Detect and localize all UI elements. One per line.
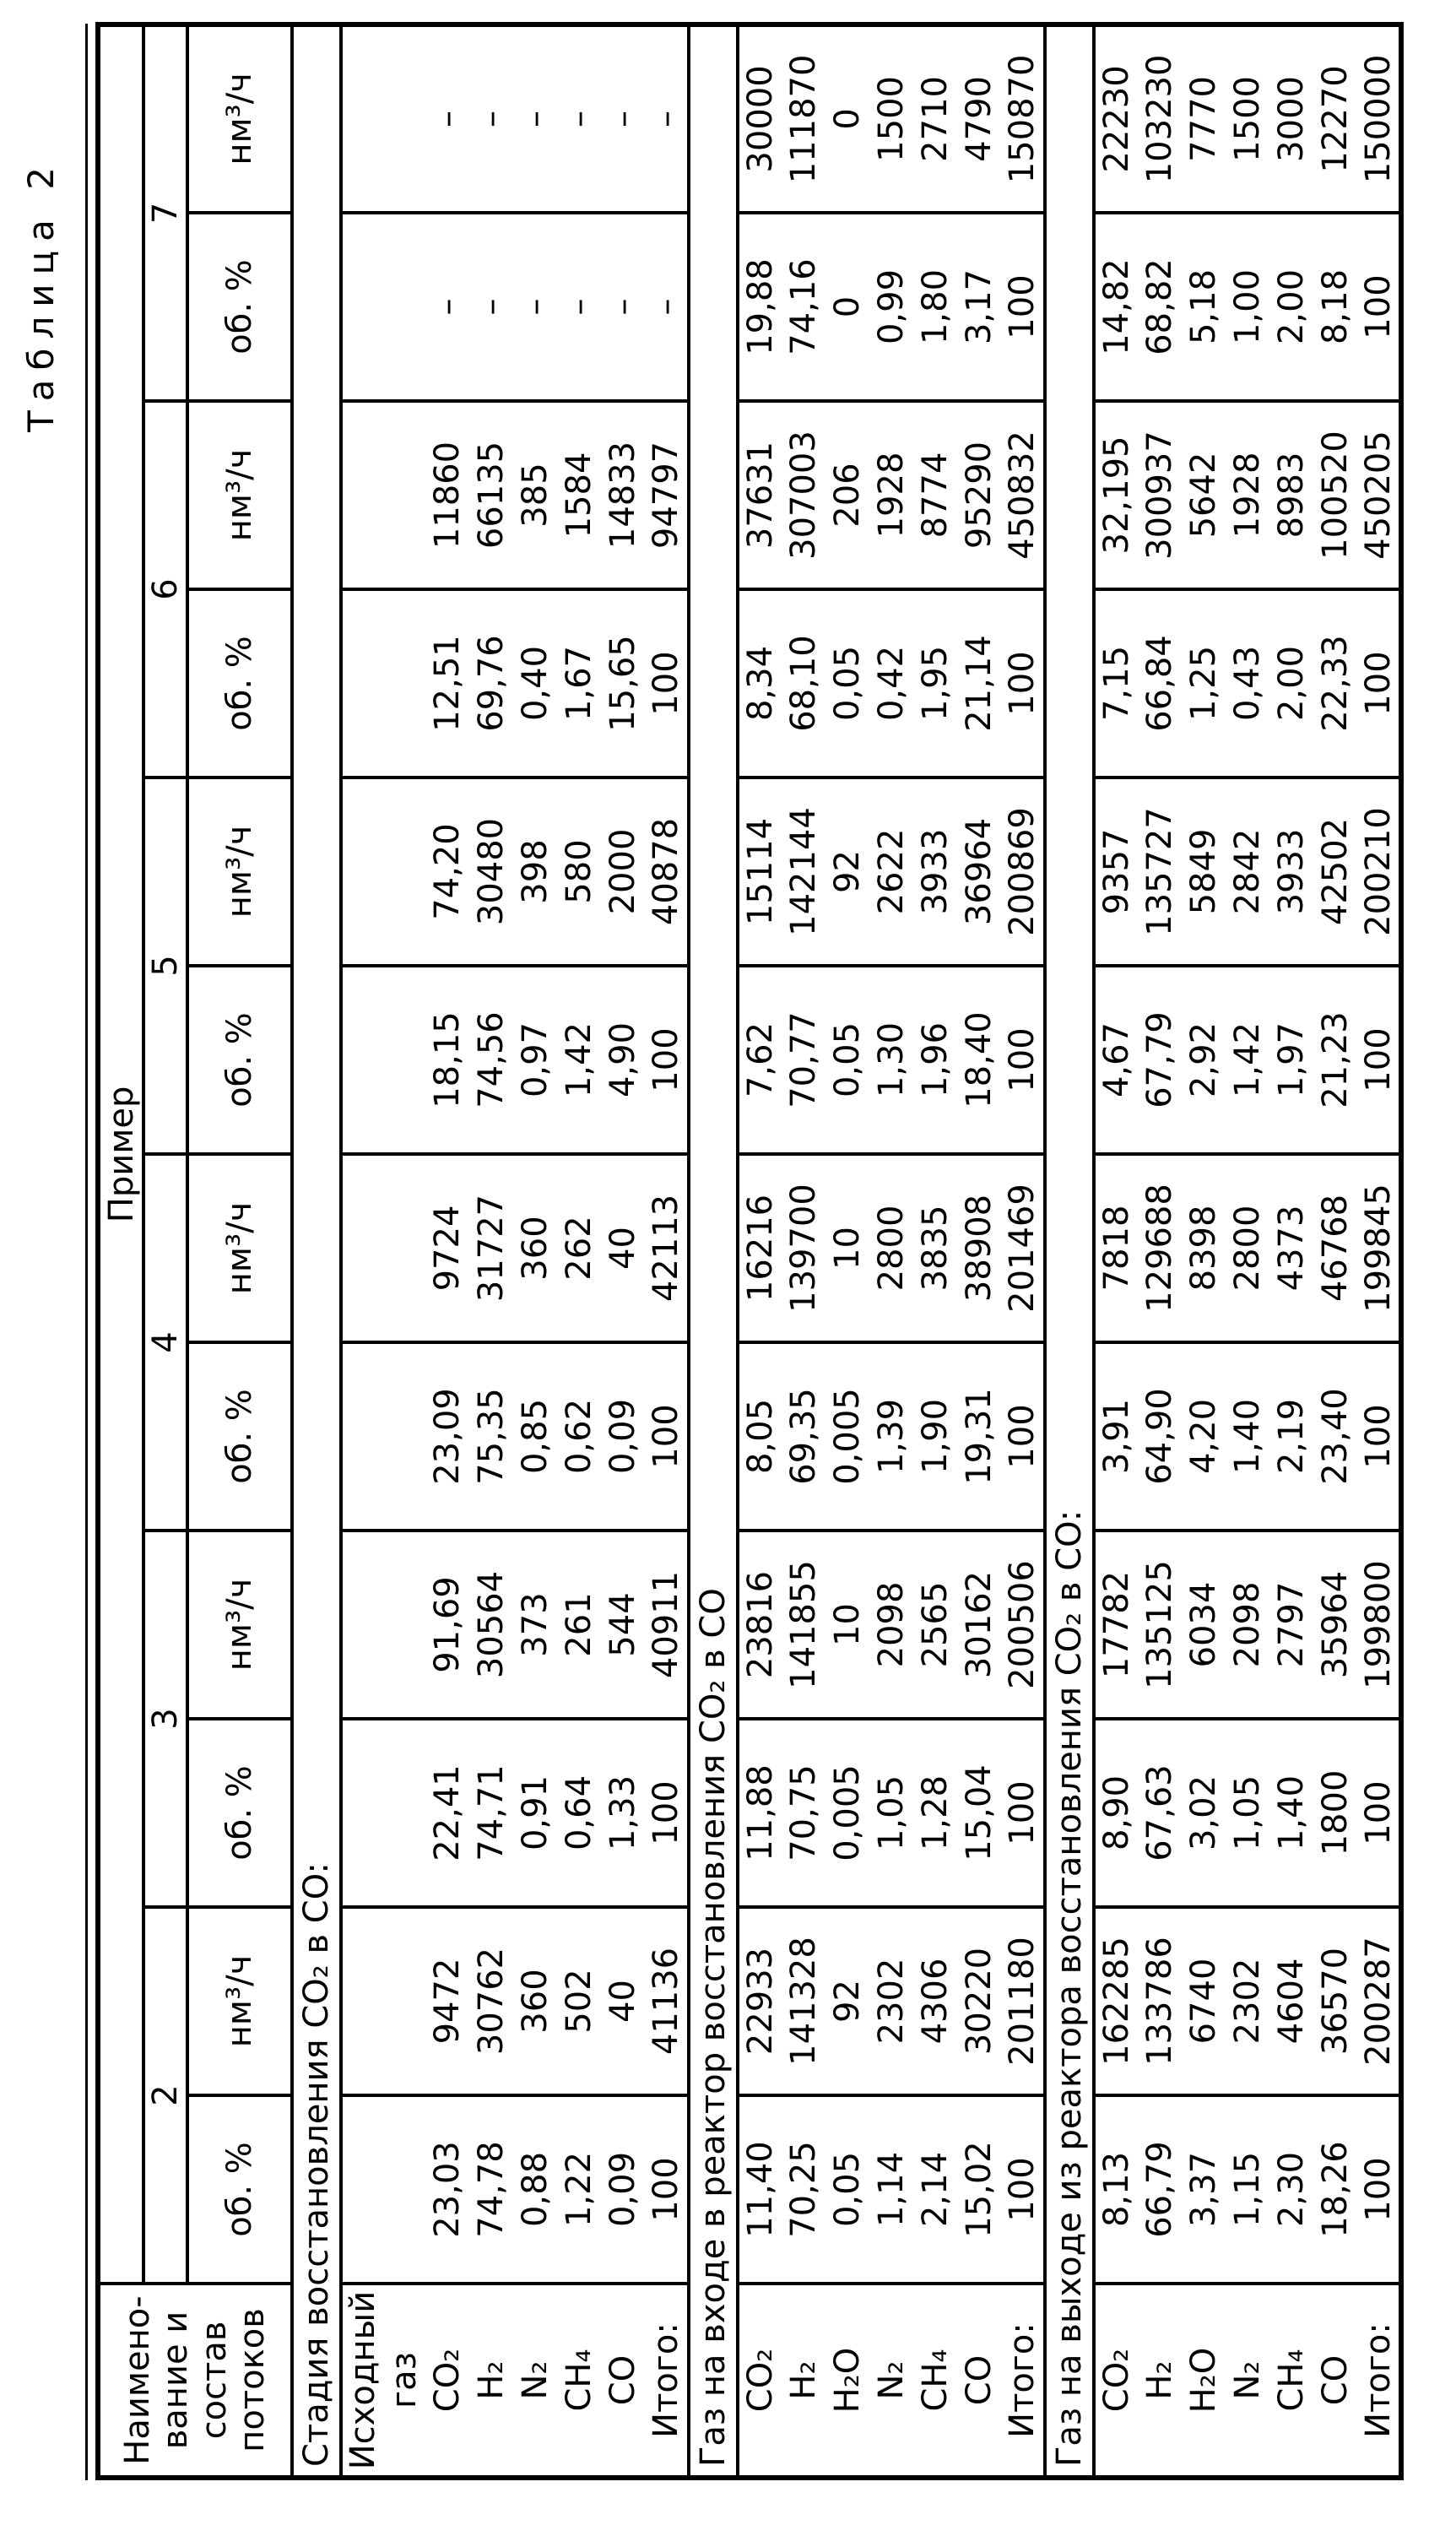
empty-cell <box>383 24 425 213</box>
example-number-header: 4 <box>143 1154 187 1531</box>
value-cell: 1,14 <box>869 2095 913 2284</box>
value-cell: 1928 <box>869 401 913 589</box>
value-cell: 95290 <box>957 401 1001 589</box>
row-label: H₂ <box>469 2284 513 2478</box>
value-cell: – <box>557 24 601 213</box>
row-label: Исходный <box>341 2284 383 2478</box>
empty-cell <box>383 213 425 401</box>
value-cell: 1,42 <box>1226 966 1269 1154</box>
value-cell: 32,195 <box>1094 401 1138 589</box>
empty-cell <box>383 1719 425 1907</box>
value-cell: 544 <box>601 1531 645 1719</box>
value-cell: 7818 <box>1094 1154 1138 1342</box>
table-row: N₂0,883600,913730,853600,973980,40385–– <box>513 24 557 2478</box>
value-cell: 69,76 <box>469 589 513 778</box>
value-cell: 200287 <box>1357 1907 1401 2095</box>
value-cell: 261 <box>557 1531 601 1719</box>
value-cell: – <box>645 213 689 401</box>
value-cell: 5642 <box>1182 401 1226 589</box>
stream-name-line: состав <box>196 2285 234 2475</box>
empty-cell <box>383 1154 425 1342</box>
value-cell: 22,33 <box>1313 589 1357 778</box>
row-label: CO₂ <box>738 2284 782 2478</box>
table-row: Итого:1002011801002005061002014691002008… <box>1001 24 1045 2478</box>
value-cell: 15,02 <box>957 2095 1001 2284</box>
value-cell: 100 <box>1001 213 1045 401</box>
value-cell: 3933 <box>1269 778 1313 966</box>
value-cell: 1,67 <box>557 589 601 778</box>
value-cell: 201469 <box>1001 1154 1045 1342</box>
value-cell: 22,41 <box>425 1719 469 1907</box>
value-cell: 1800 <box>1313 1719 1357 1907</box>
value-cell: 129688 <box>1138 1154 1182 1342</box>
value-cell: 40 <box>601 1907 645 2095</box>
value-cell: 8,34 <box>738 589 782 778</box>
unit-header-flow: нм³/ч <box>187 401 292 589</box>
value-cell: 40878 <box>645 778 689 966</box>
empty-cell <box>341 1154 383 1342</box>
value-cell: 103230 <box>1138 24 1182 213</box>
example-number-header: 7 <box>143 24 187 401</box>
value-cell: 0,09 <box>601 2095 645 2284</box>
value-cell: 1,28 <box>913 1719 957 1907</box>
section-title: Газ на выходе из реактора восстановления… <box>1045 24 1094 2478</box>
outer-double-rule <box>85 24 88 2480</box>
value-cell: 0 <box>825 24 869 213</box>
value-cell: – <box>513 213 557 401</box>
row-label: Итого: <box>645 2284 689 2478</box>
value-cell: 1,40 <box>1269 1719 1313 1907</box>
value-cell: 0,42 <box>869 589 913 778</box>
value-cell: – <box>425 24 469 213</box>
value-cell: 2622 <box>869 778 913 966</box>
value-cell: 4,20 <box>1182 1342 1226 1531</box>
value-cell: 300937 <box>1138 401 1182 589</box>
value-cell: 64,90 <box>1138 1342 1182 1531</box>
value-cell: 4306 <box>913 1907 957 2095</box>
value-cell: 1,22 <box>557 2095 601 2284</box>
table-row: H₂O0,05920,005100,005100,05920,0520600 <box>825 24 869 2478</box>
value-cell: 141328 <box>782 1907 825 2095</box>
empty-cell <box>341 401 383 589</box>
table-row: CO₂8,131622858,90177823,9178184,6793577,… <box>1094 24 1138 2478</box>
unit-header-flow: нм³/ч <box>187 1531 292 1719</box>
value-cell: 100 <box>1357 589 1401 778</box>
value-cell: 133786 <box>1138 1907 1182 2095</box>
row-label: N₂ <box>513 2284 557 2478</box>
empty-cell <box>341 1342 383 1531</box>
table-row: CO₂23,03947222,4191,6923,09972418,1574,2… <box>425 24 469 2478</box>
value-cell: 16216 <box>738 1154 782 1342</box>
value-cell: – <box>601 24 645 213</box>
value-cell: 92 <box>825 1907 869 2095</box>
example-number-header: 5 <box>143 778 187 1154</box>
value-cell: 100 <box>1357 1342 1401 1531</box>
value-cell: 66,84 <box>1138 589 1182 778</box>
value-cell: 14,82 <box>1094 213 1138 401</box>
value-cell: 8774 <box>913 401 957 589</box>
value-cell: 262 <box>557 1154 601 1342</box>
value-cell: 7770 <box>1182 24 1226 213</box>
value-cell: – <box>645 24 689 213</box>
value-cell: 2302 <box>869 1907 913 2095</box>
value-cell: 1,05 <box>1226 1719 1269 1907</box>
value-cell: 2800 <box>869 1154 913 1342</box>
empty-cell <box>383 2095 425 2284</box>
value-cell: 3933 <box>913 778 957 966</box>
value-cell: 1,40 <box>1226 1342 1269 1531</box>
value-cell: 9472 <box>425 1907 469 2095</box>
value-cell: 75,35 <box>469 1342 513 1531</box>
row-label: Итого: <box>1357 2284 1401 2478</box>
value-cell: 373 <box>513 1531 557 1719</box>
value-cell: 2302 <box>1226 1907 1269 2095</box>
unit-header-vol: об. % <box>187 213 292 401</box>
value-cell: 142144 <box>782 778 825 966</box>
value-cell: 1,42 <box>557 966 601 1154</box>
stream-name-line: вание и <box>157 2285 195 2475</box>
empty-cell <box>341 1531 383 1719</box>
empty-cell <box>383 1907 425 2095</box>
value-cell: 2,14 <box>913 2095 957 2284</box>
value-cell: 1500 <box>1226 24 1269 213</box>
value-cell: 41136 <box>645 1907 689 2095</box>
value-cell: 4,67 <box>1094 966 1138 1154</box>
value-cell: 10 <box>825 1531 869 1719</box>
value-cell: 0,64 <box>557 1719 601 1907</box>
value-cell: 18,40 <box>957 966 1001 1154</box>
label-only-row: Исходный <box>341 24 383 2478</box>
value-cell: 15,04 <box>957 1719 1001 1907</box>
value-cell: 150870 <box>1001 24 1045 213</box>
value-cell: 23,40 <box>1313 1342 1357 1531</box>
value-cell: 14833 <box>601 401 645 589</box>
value-cell: 1,15 <box>1226 2095 1269 2284</box>
section-title-row: Стадия восстановления CO₂ в CO: <box>292 24 341 2478</box>
value-cell: 199800 <box>1357 1531 1401 1719</box>
value-cell: 68,82 <box>1138 213 1182 401</box>
value-cell: 40 <box>601 1154 645 1342</box>
table-row: H₂74,783076274,713056475,353172774,56304… <box>469 24 513 2478</box>
value-cell: 1928 <box>1226 401 1269 589</box>
value-cell: 23,09 <box>425 1342 469 1531</box>
value-cell: 30480 <box>469 778 513 966</box>
value-cell: 37631 <box>738 401 782 589</box>
value-cell: 30220 <box>957 1907 1001 2095</box>
empty-cell <box>383 966 425 1154</box>
empty-cell <box>341 778 383 966</box>
row-label: CH₄ <box>913 2284 957 2478</box>
value-cell: 200869 <box>1001 778 1045 966</box>
value-cell: 1,25 <box>1182 589 1226 778</box>
value-cell: 0,05 <box>825 589 869 778</box>
unit-header-vol: об. % <box>187 1719 292 1907</box>
value-cell: 0,09 <box>601 1342 645 1531</box>
value-cell: 450832 <box>1001 401 1045 589</box>
value-cell: 0,91 <box>513 1719 557 1907</box>
empty-cell <box>341 589 383 778</box>
section-title: Газ на входе в реактор восстановления CO… <box>689 24 738 2478</box>
value-cell: 70,77 <box>782 966 825 1154</box>
value-cell: 74,20 <box>425 778 469 966</box>
value-cell: 0,88 <box>513 2095 557 2284</box>
table-body: Стадия восстановления CO₂ в CO:Исходныйг… <box>292 24 1401 2478</box>
value-cell: 201180 <box>1001 1907 1045 2095</box>
unit-header-flow: нм³/ч <box>187 1154 292 1342</box>
value-cell: 36964 <box>957 778 1001 966</box>
value-cell: 1,30 <box>869 966 913 1154</box>
value-cell: – <box>425 213 469 401</box>
value-cell: 360 <box>513 1154 557 1342</box>
value-cell: 0,05 <box>825 2095 869 2284</box>
value-cell: – <box>557 213 601 401</box>
unit-header-vol: об. % <box>187 1342 292 1531</box>
row-label: CO <box>957 2284 1001 2478</box>
scanned-page: Таблица 2 Наимено- вание и состав потоко… <box>0 0 1456 2525</box>
value-cell: 2842 <box>1226 778 1269 966</box>
row-label: газ <box>383 2284 425 2478</box>
value-cell: 2,92 <box>1182 966 1226 1154</box>
value-cell: 100 <box>1357 2095 1401 2284</box>
example-group-header: Пример <box>98 24 143 2284</box>
value-cell: 38908 <box>957 1154 1001 1342</box>
value-cell: 1500 <box>869 24 913 213</box>
table-row: N₂1,1423021,0520981,3928001,3026220,4219… <box>869 24 913 2478</box>
empty-cell <box>341 1719 383 1907</box>
value-cell: 74,56 <box>469 966 513 1154</box>
value-cell: 580 <box>557 778 601 966</box>
example-number-header: 6 <box>143 401 187 778</box>
data-table: Наимено- вание и состав потоков Пример 2… <box>95 22 1404 2480</box>
value-cell: 162285 <box>1094 1907 1138 2095</box>
value-cell: 3000 <box>1269 24 1313 213</box>
row-label: N₂ <box>869 2284 913 2478</box>
empty-cell <box>383 1531 425 1719</box>
value-cell: 42502 <box>1313 778 1357 966</box>
table-row: Итого:1002002871001998001001998451002002… <box>1357 24 1401 2478</box>
value-cell: 91,69 <box>425 1531 469 1719</box>
value-cell: 100 <box>1001 1719 1045 1907</box>
value-cell: 70,75 <box>782 1719 825 1907</box>
value-cell: 74,78 <box>469 2095 513 2284</box>
value-cell: 8,05 <box>738 1342 782 1531</box>
value-cell: – <box>601 213 645 401</box>
row-label: CO <box>1313 2284 1357 2478</box>
value-cell: 40911 <box>645 1531 689 1719</box>
value-cell: 23,03 <box>425 2095 469 2284</box>
table-row: H₂66,7913378667,6313512564,9012968867,79… <box>1138 24 1182 2478</box>
value-cell: 3835 <box>913 1154 957 1342</box>
table-row: CH₄2,1443061,2825651,9038351,9639331,958… <box>913 24 957 2478</box>
value-cell: 2,00 <box>1269 589 1313 778</box>
value-cell: 150000 <box>1357 24 1401 213</box>
value-cell: 1,90 <box>913 1342 957 1531</box>
value-cell: 385 <box>513 401 557 589</box>
value-cell: 3,91 <box>1094 1342 1138 1531</box>
table-header: Наимено- вание и состав потоков Пример 2… <box>98 24 292 2478</box>
value-cell: 450205 <box>1357 401 1401 589</box>
value-cell: 111870 <box>782 24 825 213</box>
value-cell: 23816 <box>738 1531 782 1719</box>
value-cell: 1,96 <box>913 966 957 1154</box>
value-cell: 17782 <box>1094 1531 1138 1719</box>
value-cell: 2,19 <box>1269 1342 1313 1531</box>
row-label: CH₄ <box>1269 2284 1313 2478</box>
empty-cell <box>341 2095 383 2284</box>
value-cell: 100 <box>1001 2095 1045 2284</box>
value-cell: 12,51 <box>425 589 469 778</box>
empty-cell <box>341 24 383 213</box>
value-cell: 100 <box>645 2095 689 2284</box>
value-cell: 67,63 <box>1138 1719 1182 1907</box>
value-cell: 0,97 <box>513 966 557 1154</box>
table-row: CO18,263657018003596423,404676821,234250… <box>1313 24 1357 2478</box>
value-cell: 135125 <box>1138 1531 1182 1719</box>
value-cell: 6740 <box>1182 1907 1226 2095</box>
row-label: H₂O <box>825 2284 869 2478</box>
value-cell: 30762 <box>469 1907 513 2095</box>
value-cell: 12270 <box>1313 24 1357 213</box>
table-row: CH₄1,225020,642610,622621,425801,671584–… <box>557 24 601 2478</box>
table-caption: Таблица 2 <box>20 158 62 432</box>
value-cell: – <box>469 24 513 213</box>
value-cell: 0,43 <box>1226 589 1269 778</box>
value-cell: 8,18 <box>1313 213 1357 401</box>
row-label: Итого: <box>1001 2284 1045 2478</box>
value-cell: 7,62 <box>738 966 782 1154</box>
value-cell: 2800 <box>1226 1154 1269 1342</box>
value-cell: 3,02 <box>1182 1719 1226 1907</box>
value-cell: 100520 <box>1313 401 1357 589</box>
empty-cell <box>383 589 425 778</box>
value-cell: 8,90 <box>1094 1719 1138 1907</box>
value-cell: 22230 <box>1094 24 1138 213</box>
unit-header-flow: нм³/ч <box>187 778 292 966</box>
value-cell: 2565 <box>913 1531 957 1719</box>
value-cell: 1,00 <box>1226 213 1269 401</box>
value-cell: 0,05 <box>825 966 869 1154</box>
value-cell: 9724 <box>425 1154 469 1342</box>
section-title-row: Газ на выходе из реактора восстановления… <box>1045 24 1094 2478</box>
label-only-row: газ <box>383 24 425 2478</box>
empty-cell <box>383 778 425 966</box>
value-cell: 100 <box>645 966 689 1154</box>
value-cell: 8,13 <box>1094 2095 1138 2284</box>
value-cell: 0,62 <box>557 1342 601 1531</box>
value-cell: – <box>513 24 557 213</box>
value-cell: 10 <box>825 1154 869 1342</box>
value-cell: 18,15 <box>425 966 469 1154</box>
value-cell: 2797 <box>1269 1531 1313 1719</box>
value-cell: 66135 <box>469 401 513 589</box>
empty-cell <box>341 1907 383 2095</box>
value-cell: 3,17 <box>957 213 1001 401</box>
value-cell: 307003 <box>782 401 825 589</box>
value-cell: 3,37 <box>1182 2095 1226 2284</box>
value-cell: 1,39 <box>869 1342 913 1531</box>
value-cell: 360 <box>513 1907 557 2095</box>
value-cell: 2098 <box>869 1531 913 1719</box>
value-cell: 30000 <box>738 24 782 213</box>
value-cell: 100 <box>1001 1342 1045 1531</box>
stream-name-line: Наимено- <box>119 2285 157 2475</box>
value-cell: 100 <box>1001 589 1045 778</box>
table-row: CO₂11,402293311,88238168,05162167,621511… <box>738 24 782 2478</box>
row-label: CO <box>601 2284 645 2478</box>
value-cell: 66,79 <box>1138 2095 1182 2284</box>
table-row: Итого:1004113610040911100421131004087810… <box>645 24 689 2478</box>
stream-name-header: Наимено- вание и состав потоков <box>98 2284 292 2478</box>
value-cell: 0,005 <box>825 1719 869 1907</box>
value-cell: 100 <box>1357 213 1401 401</box>
value-cell: 8398 <box>1182 1154 1226 1342</box>
value-cell: 69,35 <box>782 1342 825 1531</box>
value-cell: 2000 <box>601 778 645 966</box>
value-cell: 15114 <box>738 778 782 966</box>
value-cell: 11,88 <box>738 1719 782 1907</box>
value-cell: 21,23 <box>1313 966 1357 1154</box>
value-cell: 70,25 <box>782 2095 825 2284</box>
value-cell: 11,40 <box>738 2095 782 2284</box>
rotated-sheet: Таблица 2 Наимено- вание и состав потоко… <box>0 0 1456 2525</box>
value-cell: 42113 <box>645 1154 689 1342</box>
unit-header-flow: нм³/ч <box>187 24 292 213</box>
section-title: Стадия восстановления CO₂ в CO: <box>292 24 341 2478</box>
value-cell: 5849 <box>1182 778 1226 966</box>
value-cell: 141855 <box>782 1531 825 1719</box>
value-cell: 502 <box>557 1907 601 2095</box>
stream-name-line: потоков <box>234 2285 272 2475</box>
table-row: CO15,023022015,043016219,313890818,40369… <box>957 24 1001 2478</box>
value-cell: 22933 <box>738 1907 782 2095</box>
value-cell: 2710 <box>913 24 957 213</box>
value-cell: 19,88 <box>738 213 782 401</box>
value-cell: 398 <box>513 778 557 966</box>
table-row: CH₄2,3046041,4027972,1943731,9739332,008… <box>1269 24 1313 2478</box>
value-cell: 30162 <box>957 1531 1001 1719</box>
value-cell: 100 <box>1357 966 1401 1154</box>
value-cell: 74,71 <box>469 1719 513 1907</box>
value-cell: 8983 <box>1269 401 1313 589</box>
value-cell: 2,00 <box>1269 213 1313 401</box>
value-cell: 46768 <box>1313 1154 1357 1342</box>
value-cell: 100 <box>645 1719 689 1907</box>
value-cell: 21,14 <box>957 589 1001 778</box>
value-cell: 0,40 <box>513 589 557 778</box>
section-title-row: Газ на входе в реактор восстановления CO… <box>689 24 738 2478</box>
empty-cell <box>341 213 383 401</box>
value-cell: 74,16 <box>782 213 825 401</box>
table-row: H₂O3,3767403,0260344,2083982,9258491,255… <box>1182 24 1226 2478</box>
value-cell: 100 <box>645 589 689 778</box>
empty-cell <box>383 1342 425 1531</box>
value-cell: 18,26 <box>1313 2095 1357 2284</box>
value-cell: 30564 <box>469 1531 513 1719</box>
value-cell: 1,97 <box>1269 966 1313 1154</box>
row-label: H₂ <box>1138 2284 1182 2478</box>
value-cell: 5,18 <box>1182 213 1226 401</box>
value-cell: 35964 <box>1313 1531 1357 1719</box>
row-label: CO₂ <box>425 2284 469 2478</box>
value-cell: 0 <box>825 213 869 401</box>
value-cell: 135727 <box>1138 778 1182 966</box>
value-cell: 1,95 <box>913 589 957 778</box>
row-label: N₂ <box>1226 2284 1269 2478</box>
value-cell: 92 <box>825 778 869 966</box>
empty-cell <box>341 966 383 1154</box>
value-cell: 206 <box>825 401 869 589</box>
value-cell: 4,90 <box>601 966 645 1154</box>
